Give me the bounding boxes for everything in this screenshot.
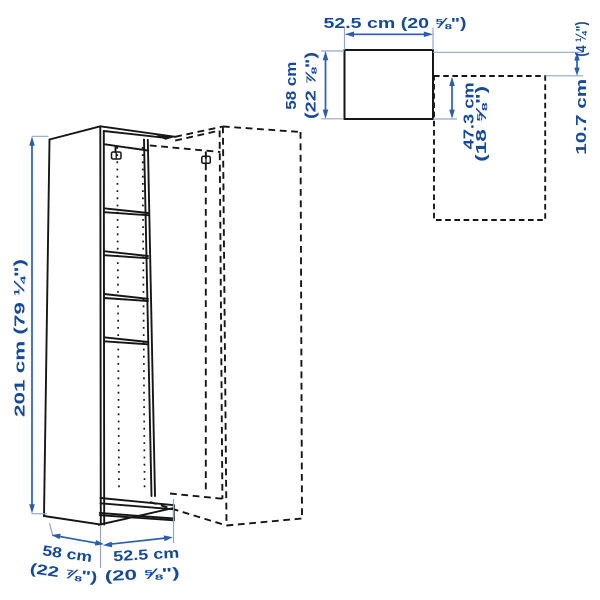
svg-text:(4 ¼"): (4 ¼")	[574, 21, 590, 56]
svg-text:201 cm (79 ¼"): 201 cm (79 ¼")	[12, 259, 28, 417]
svg-text:58 cm: 58 cm	[284, 62, 300, 110]
svg-text:(22 ⅞"): (22 ⅞")	[304, 52, 320, 119]
svg-text:(18 ⅝"): (18 ⅝")	[474, 86, 490, 162]
svg-text:52.5 cm (20 ⅝"): 52.5 cm (20 ⅝")	[324, 16, 467, 32]
svg-text:10.7 cm: 10.7 cm	[574, 79, 590, 155]
